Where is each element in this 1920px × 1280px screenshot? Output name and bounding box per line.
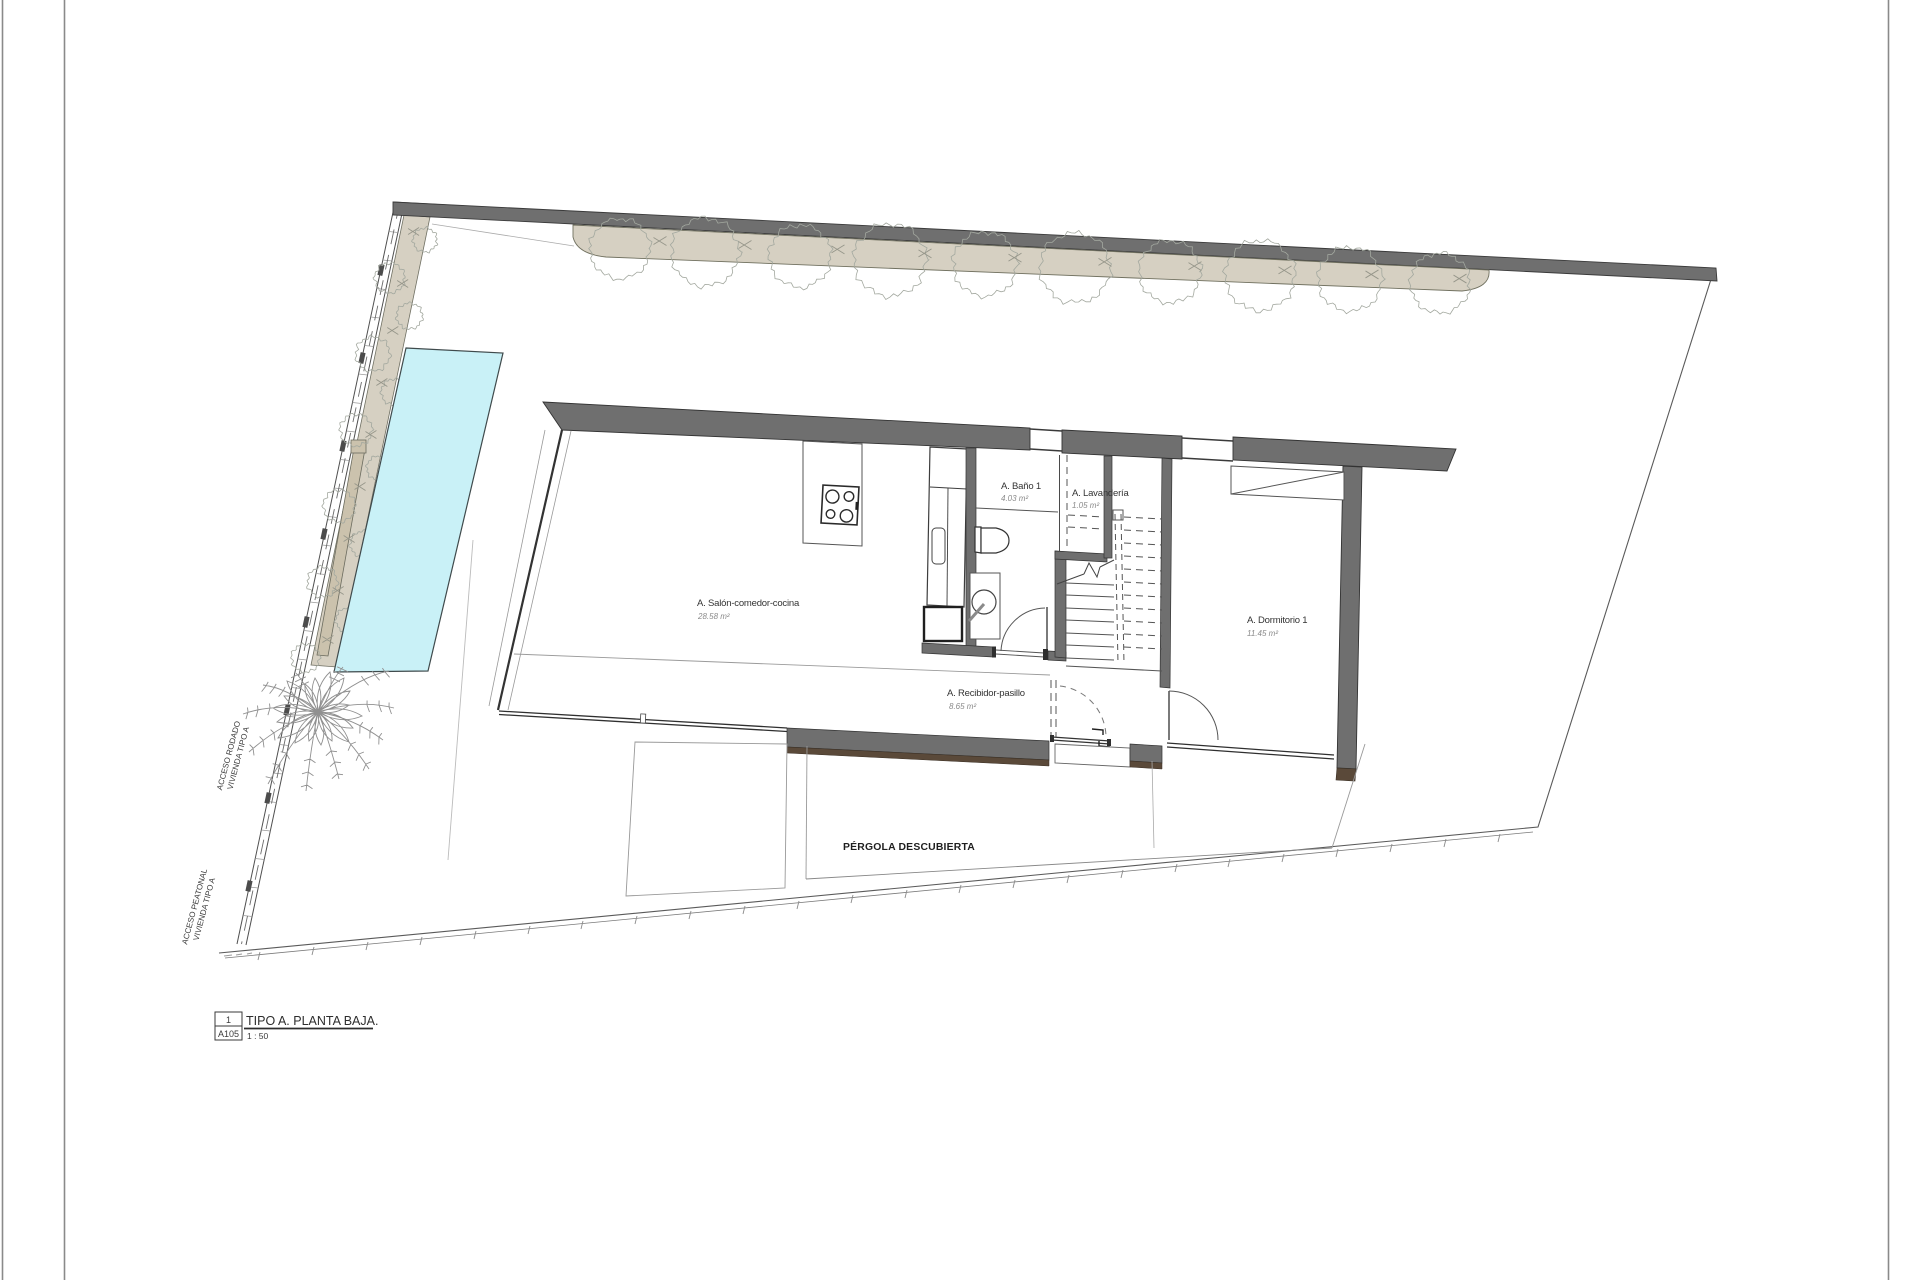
svg-text:1 : 50: 1 : 50 [247, 1031, 269, 1041]
svg-text:8.65 m²: 8.65 m² [949, 702, 976, 711]
svg-text:A. Lavandería: A. Lavandería [1072, 488, 1129, 499]
svg-text:4.03 m²: 4.03 m² [1001, 494, 1028, 503]
svg-text:A105: A105 [218, 1029, 239, 1039]
svg-text:1.05 m²: 1.05 m² [1072, 501, 1099, 510]
svg-text:11.45 m²: 11.45 m² [1247, 629, 1278, 638]
svg-text:A. Dormitorio 1: A. Dormitorio 1 [1247, 615, 1307, 626]
svg-text:1: 1 [226, 1015, 231, 1025]
svg-text:A. Baño 1: A. Baño 1 [1001, 481, 1041, 492]
svg-text:A. Salón-comedor-cocina: A. Salón-comedor-cocina [697, 598, 800, 609]
svg-text:TIPO A. PLANTA BAJA.: TIPO A. PLANTA BAJA. [246, 1014, 378, 1028]
svg-text:PÉRGOLA DESCUBIERTA: PÉRGOLA DESCUBIERTA [843, 840, 975, 853]
svg-text:28.58 m²: 28.58 m² [697, 612, 730, 621]
svg-text:A. Recibidor-pasillo: A. Recibidor-pasillo [947, 688, 1025, 699]
